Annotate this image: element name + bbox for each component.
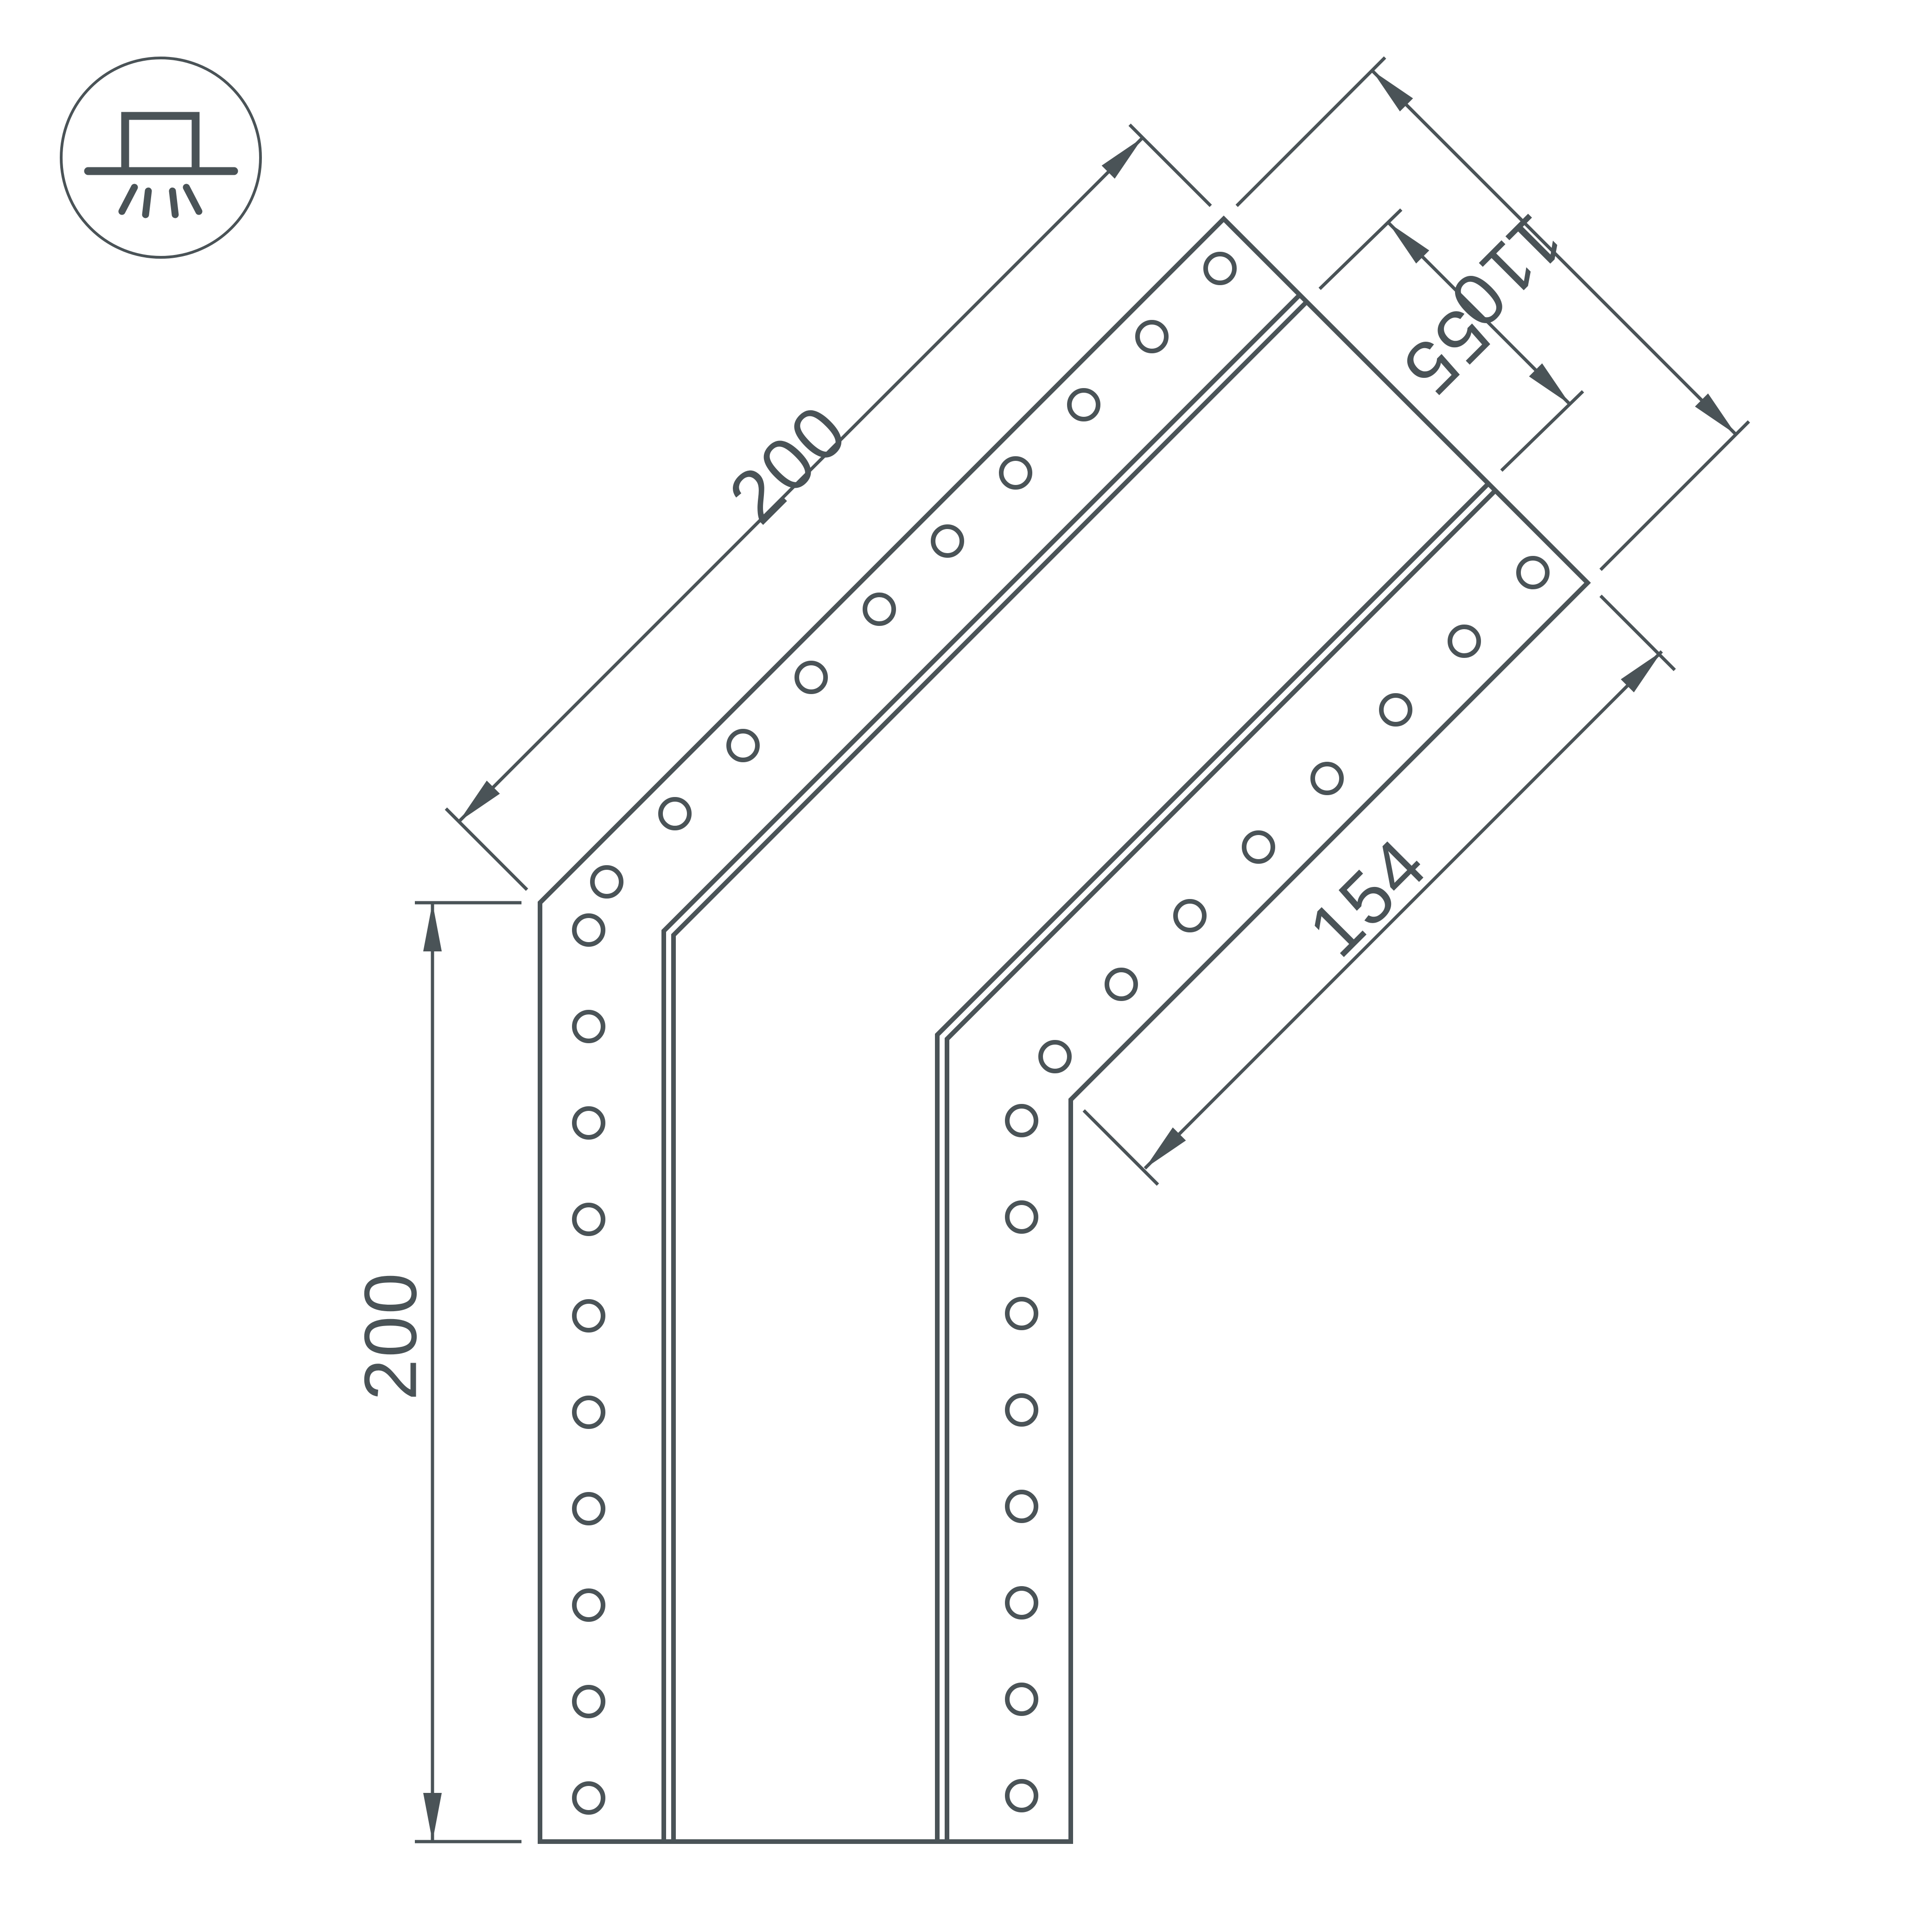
extension-line — [1084, 1110, 1158, 1185]
mounting-hole — [1007, 1588, 1036, 1617]
arrowhead-icon — [1529, 363, 1577, 411]
light-ray-icon — [172, 191, 175, 215]
channel-edge-right-outer — [947, 491, 1495, 1842]
mounting-hole — [574, 1205, 603, 1234]
mounting-type-icon — [61, 58, 261, 257]
dimension-label: 200 — [713, 389, 863, 539]
mounting-hole — [1007, 1685, 1036, 1714]
mounting-hole — [865, 595, 894, 624]
mounting-hole — [1007, 1492, 1036, 1521]
mounting-hole — [1450, 627, 1479, 656]
mounting-hole — [1007, 1781, 1036, 1810]
mounting-hole — [574, 1591, 603, 1620]
arrowhead-icon — [1695, 394, 1743, 441]
mounting-hole — [729, 731, 757, 760]
mounting-hole — [574, 1784, 603, 1812]
light-ray-icon — [122, 187, 134, 211]
mounting-hole — [574, 1109, 603, 1137]
mounting-hole — [592, 867, 621, 896]
extension-line — [1237, 57, 1385, 206]
mounting-hole — [797, 663, 826, 692]
light-ray-icon — [186, 187, 199, 211]
profile-body — [540, 219, 1588, 1842]
extension-line — [1601, 596, 1675, 670]
profile-outline — [540, 219, 1588, 1842]
channel-edge-right-inner — [937, 484, 1488, 1842]
mounting-hole — [1519, 558, 1547, 587]
mounting-hole — [1381, 695, 1410, 724]
mounting-hole — [574, 1494, 603, 1523]
extension-line — [1320, 210, 1401, 289]
mounting-hole — [574, 1398, 603, 1427]
corner-profile-drawing: 200 200 110 55 154 — [0, 0, 1932, 1932]
mounting-hole — [1176, 901, 1204, 930]
mounting-hole — [1206, 254, 1234, 283]
arrowhead-icon — [423, 1793, 442, 1842]
light-rays-icon — [122, 187, 199, 215]
mounting-hole — [1001, 459, 1030, 487]
arrowhead-icon — [1138, 1128, 1186, 1175]
dimension-lower-arm: 154 — [1084, 596, 1675, 1185]
surface-mount-light-icon — [125, 116, 196, 171]
mounting-hole — [1313, 764, 1341, 793]
drawing-canvas: 200 200 110 55 154 — [0, 0, 1932, 1932]
mounting-hole — [1138, 322, 1166, 351]
dimension-upper-arm: 200 — [446, 125, 1211, 890]
mounting-hole — [661, 799, 689, 828]
mounting-hole — [574, 1687, 603, 1716]
arrowhead-icon — [1366, 64, 1413, 112]
extension-line — [1601, 421, 1749, 570]
dimension-label: 154 — [1292, 822, 1443, 972]
mounting-hole — [574, 916, 603, 944]
mounting-hole — [574, 1301, 603, 1330]
mounting-hole — [1007, 1106, 1036, 1135]
mounting-hole — [574, 1012, 603, 1041]
dimension-left-height: 200 — [349, 903, 522, 1842]
mounting-hole — [1107, 970, 1136, 999]
mounting-hole — [1244, 833, 1273, 861]
mounting-hole — [1069, 390, 1098, 419]
arrowhead-icon — [1621, 645, 1669, 693]
arrowhead-icon — [423, 903, 442, 951]
light-ray-icon — [146, 191, 148, 215]
dimension-label: 200 — [349, 1271, 432, 1401]
icon-circle — [61, 58, 261, 257]
mounting-hole — [1007, 1203, 1036, 1231]
mounting-hole — [1007, 1299, 1036, 1328]
arrowhead-icon — [452, 781, 500, 829]
arrowhead-icon — [1102, 131, 1150, 179]
mounting-hole — [1041, 1042, 1069, 1071]
mounting-hole — [1007, 1396, 1036, 1424]
arrowhead-icon — [1382, 216, 1430, 264]
mounting-hole — [933, 527, 962, 555]
